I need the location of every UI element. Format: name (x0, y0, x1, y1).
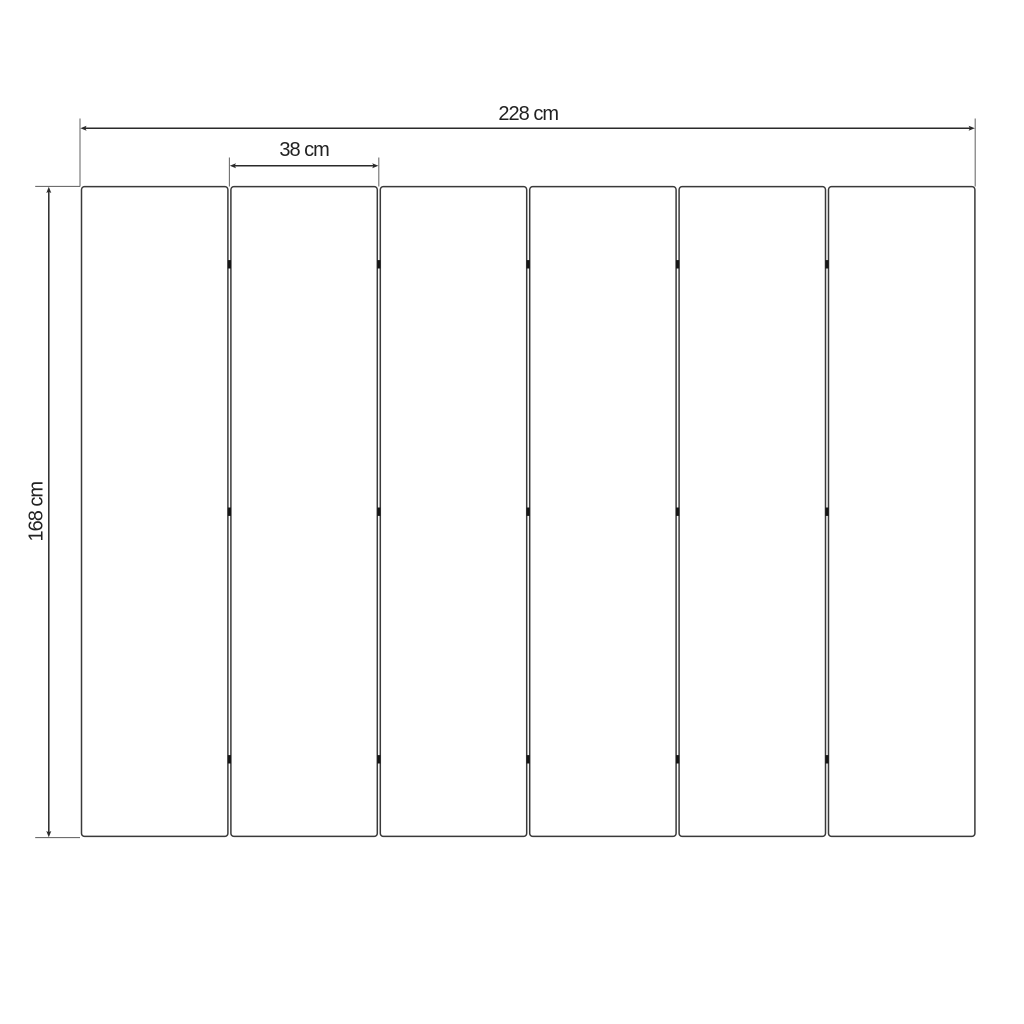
svg-text:168 cm: 168 cm (25, 482, 47, 542)
svg-text:228 cm: 228 cm (498, 103, 558, 125)
svg-text:38 cm: 38 cm (279, 139, 329, 161)
